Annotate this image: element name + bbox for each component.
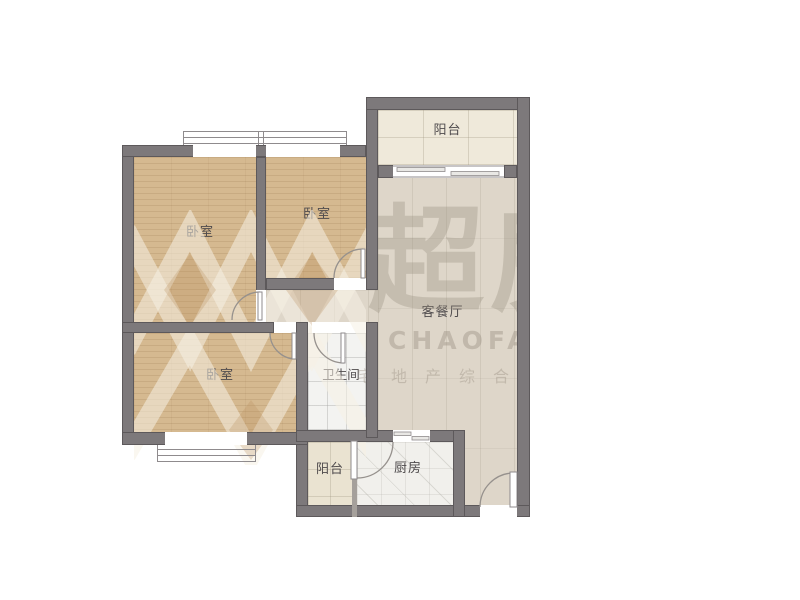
door-bedroom-bottom-left-icon <box>270 322 296 359</box>
openings-overlay <box>0 0 800 600</box>
door-entrance-icon <box>480 472 517 517</box>
door-kitchen-balcony-icon <box>351 441 393 479</box>
balcony-sliding-door-icon <box>393 165 504 178</box>
bay-window-top-icon <box>183 131 347 157</box>
bay-window-bottom-icon <box>157 432 256 462</box>
floor-plan: 卧室 卧室 卧室 客餐厅 阳台 卫生间 阳台 厨房 超房 CHAOFANG 宅地… <box>0 0 800 600</box>
door-bedroom-top-left-icon <box>232 290 266 322</box>
door-bathroom-icon <box>312 322 345 363</box>
kitchen-sliding-door-icon <box>393 430 430 442</box>
door-bedroom-top-right-icon <box>334 249 366 290</box>
